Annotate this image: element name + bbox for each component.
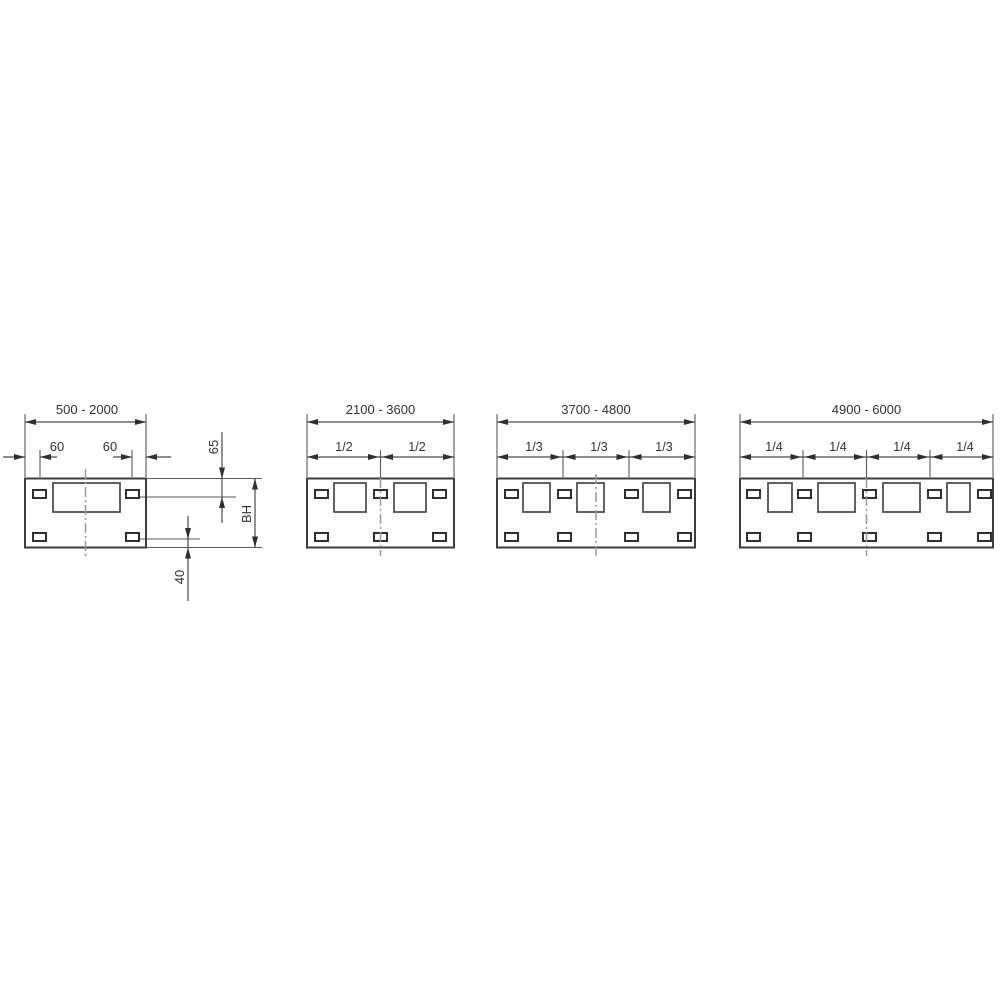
d4-window-1 [768,483,792,512]
d1-slots [33,490,139,541]
d4-window-4 [947,483,970,512]
d1-body-height-label: BH [239,505,254,523]
d2-range-label: 2100 - 3600 [346,402,415,417]
d4-fraction-label-1: 1/4 [765,440,782,454]
d3-fraction-label-2: 1/3 [590,440,607,454]
d4-fraction-label-2: 1/4 [829,440,846,454]
technical-drawing-canvas: 500 - 2000 60 60 65 BH 40 2100 - 3600 1/… [0,0,1000,1000]
d4-slots [747,490,991,541]
d2-window-1 [334,483,366,512]
d3-window-3 [643,483,670,512]
d4-range-label: 4900 - 6000 [832,402,901,417]
d1-window-1 [53,483,120,512]
d1-bottom-inset-label: 40 [172,570,187,584]
d1-extension-lines [25,414,262,548]
d2-fraction-label-2: 1/2 [408,440,425,454]
d4-fraction-label-3: 1/4 [893,440,910,454]
d4-window-3 [883,483,920,512]
d2-fraction-label-1: 1/2 [335,440,352,454]
d4-window-2 [818,483,855,512]
d1-offset-arrowheads [14,454,157,460]
d3-slots [505,490,691,541]
d3-fraction-label-3: 1/3 [655,440,672,454]
diagram-2100-3600: 2100 - 3600 1/2 1/2 [307,402,454,556]
d4-fraction-label-4: 1/4 [956,440,973,454]
d1-right-offset-label: 60 [103,439,117,454]
d3-range-label: 3700 - 4800 [561,402,630,417]
d1-left-offset-label: 60 [50,439,64,454]
d3-window-1 [523,483,550,512]
d3-fraction-label-1: 1/3 [525,440,542,454]
diagram-3700-4800: 3700 - 4800 1/3 1/3 1/3 [497,402,695,556]
d1-top-inset-label: 65 [206,440,221,454]
diagram-500-2000: 500 - 2000 60 60 65 BH 40 [3,402,262,601]
d2-window-2 [394,483,426,512]
diagram-4900-6000: 4900 - 6000 1/4 1/4 1/4 1/4 [740,402,993,556]
d3-window-2 [577,483,604,512]
d1-range-label: 500 - 2000 [56,402,118,417]
drawing-svg: 500 - 2000 60 60 65 BH 40 2100 - 3600 1/… [0,0,1000,1000]
